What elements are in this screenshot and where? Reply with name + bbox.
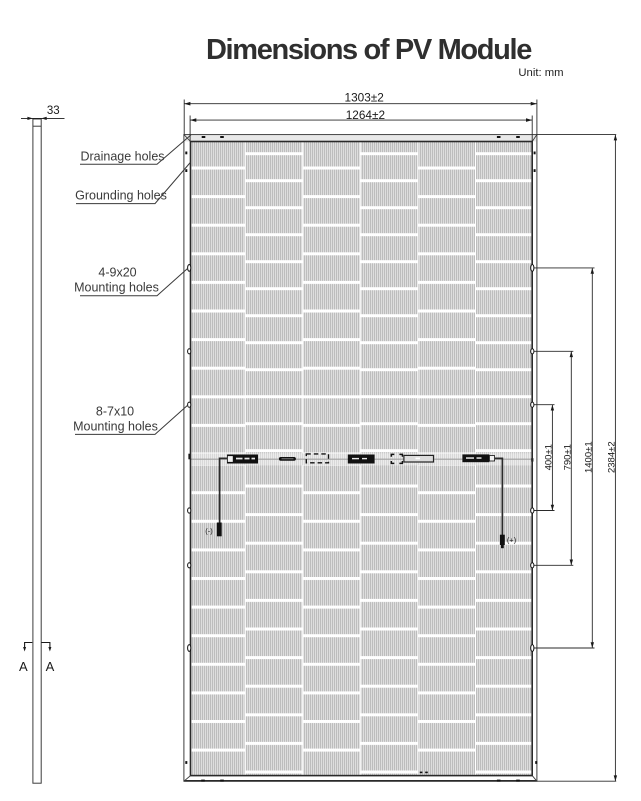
svg-text:2384±2: 2384±2 — [606, 441, 617, 473]
svg-text:33: 33 — [47, 105, 60, 117]
svg-text:Drainage holes: Drainage holes — [80, 150, 164, 164]
svg-text:A: A — [19, 659, 28, 674]
svg-text:1264±2: 1264±2 — [346, 108, 385, 122]
svg-text:A: A — [46, 659, 55, 674]
svg-text:1303±2: 1303±2 — [345, 91, 384, 105]
svg-text:Mounting holes: Mounting holes — [74, 281, 159, 295]
svg-text:(-): (-) — [205, 527, 213, 536]
svg-text:1400±1: 1400±1 — [583, 441, 594, 473]
svg-text:400±1: 400±1 — [543, 444, 554, 470]
svg-text:790±1: 790±1 — [562, 444, 573, 470]
svg-text:Dimensions of PV Module: Dimensions of PV Module — [206, 34, 532, 66]
svg-text:8-7x10: 8-7x10 — [96, 405, 134, 419]
svg-text:Mounting holes: Mounting holes — [73, 420, 158, 434]
svg-text:Unit: mm: Unit: mm — [518, 67, 563, 79]
svg-text:Grounding holes: Grounding holes — [75, 189, 167, 203]
svg-text:4-9x20: 4-9x20 — [98, 266, 136, 280]
svg-text:(+): (+) — [507, 536, 517, 545]
